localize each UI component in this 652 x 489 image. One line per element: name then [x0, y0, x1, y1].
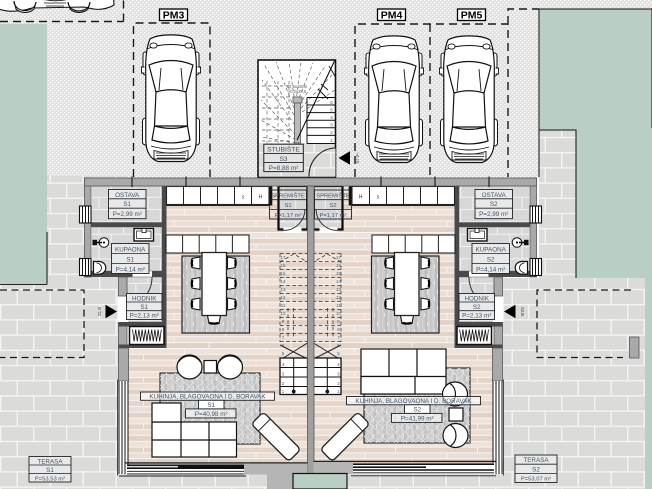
svg-text:PM5: PM5: [461, 10, 483, 22]
svg-text:S2: S2: [413, 407, 421, 414]
svg-text:KUPAONA: KUPAONA: [115, 246, 146, 253]
svg-text:10: 10: [281, 311, 286, 316]
svg-text:1: 1: [330, 138, 333, 143]
svg-text:KUHINJA, BLAGOVAONA I D. BORAV: KUHINJA, BLAGOVAONA I D. BORAVAK: [355, 398, 472, 405]
svg-text:H: H: [359, 195, 363, 201]
svg-text:4: 4: [330, 115, 333, 120]
svg-text:S2: S2: [329, 203, 336, 209]
svg-text:12: 12: [336, 295, 341, 300]
svg-text:P=2,13 m²: P=2,13 m²: [130, 313, 159, 320]
svg-text:KUPAONA: KUPAONA: [476, 246, 507, 253]
svg-text:11: 11: [336, 303, 341, 308]
svg-text:OSTAVA: OSTAVA: [115, 192, 140, 199]
svg-text:S1: S1: [126, 256, 134, 263]
svg-text:S2: S2: [487, 256, 495, 263]
svg-text:PM3: PM3: [163, 10, 185, 22]
svg-text:6: 6: [330, 100, 333, 105]
svg-text:10: 10: [336, 311, 341, 316]
svg-text:P=2,99 m²: P=2,99 m²: [479, 211, 508, 218]
svg-text:PM4: PM4: [381, 10, 403, 22]
svg-text:P=1,17 m²: P=1,17 m²: [275, 213, 302, 219]
svg-text:HODNIK: HODNIK: [464, 295, 489, 302]
svg-text:17: 17: [336, 255, 341, 260]
svg-text:HODNIK: HODNIK: [132, 295, 157, 302]
svg-text:P=1,17 m²: P=1,17 m²: [320, 213, 347, 219]
svg-text:SPREMIŠTE: SPREMIŠTE: [316, 193, 350, 200]
svg-text:16: 16: [336, 263, 341, 268]
svg-text:15: 15: [281, 271, 286, 276]
svg-text:P=53,07 m²: P=53,07 m²: [521, 477, 551, 483]
svg-text:13: 13: [281, 287, 286, 292]
svg-text:S2: S2: [473, 304, 481, 311]
svg-text:KUHINJA, BLAGOVAONA I D. BORAV: KUHINJA, BLAGOVAONA I D. BORAVAK: [149, 394, 266, 401]
svg-text:S2.B: S2.B: [520, 307, 525, 316]
svg-text:TERASA: TERASA: [37, 458, 63, 465]
svg-text:14: 14: [336, 279, 341, 284]
svg-text:S1.B: S1.B: [97, 307, 102, 316]
svg-text:S1: S1: [46, 467, 54, 474]
svg-text:P=2,13 m²: P=2,13 m²: [462, 313, 491, 320]
svg-text:3: 3: [330, 123, 333, 128]
svg-text:STUBIŠTE: STUBIŠTE: [267, 145, 300, 154]
svg-text:2: 2: [330, 130, 333, 135]
svg-text:P=41,99 m²: P=41,99 m²: [401, 416, 434, 423]
svg-text:15: 15: [336, 271, 341, 276]
svg-text:H: H: [259, 195, 263, 201]
svg-text:P=40,98 m²: P=40,98 m²: [195, 411, 228, 418]
svg-text:11: 11: [281, 303, 286, 308]
svg-text:S1: S1: [284, 203, 291, 209]
svg-text:14: 14: [281, 279, 286, 284]
svg-text:12: 12: [281, 295, 286, 300]
svg-text:S2: S2: [532, 466, 540, 473]
svg-text:S1: S1: [140, 304, 148, 311]
svg-text:P=4,14 m²: P=4,14 m²: [116, 266, 145, 273]
svg-text:17: 17: [281, 255, 286, 260]
svg-text:P=53,53 m²: P=53,53 m²: [35, 476, 65, 482]
svg-text:P=8,88 m²: P=8,88 m²: [269, 165, 299, 172]
svg-text:S1: S1: [123, 201, 131, 208]
svg-text:SPREMIŠTE: SPREMIŠTE: [271, 193, 305, 200]
svg-text:16: 16: [281, 263, 286, 268]
svg-text:≈0,18: ≈0,18: [355, 153, 360, 165]
svg-text:P=4,14 m²: P=4,14 m²: [476, 266, 505, 273]
svg-text:TERASA: TERASA: [523, 457, 549, 464]
svg-text:S2: S2: [490, 201, 498, 208]
svg-text:S1: S1: [207, 402, 215, 409]
svg-text:S3: S3: [280, 156, 288, 163]
svg-text:13: 13: [336, 287, 341, 292]
svg-text:≈0,2x28,0: ≈0,2x28,0: [288, 89, 307, 94]
svg-text:P=2,99 m²: P=2,99 m²: [113, 211, 142, 218]
svg-text:5: 5: [330, 108, 333, 113]
svg-text:OSTAVA: OSTAVA: [482, 192, 507, 199]
